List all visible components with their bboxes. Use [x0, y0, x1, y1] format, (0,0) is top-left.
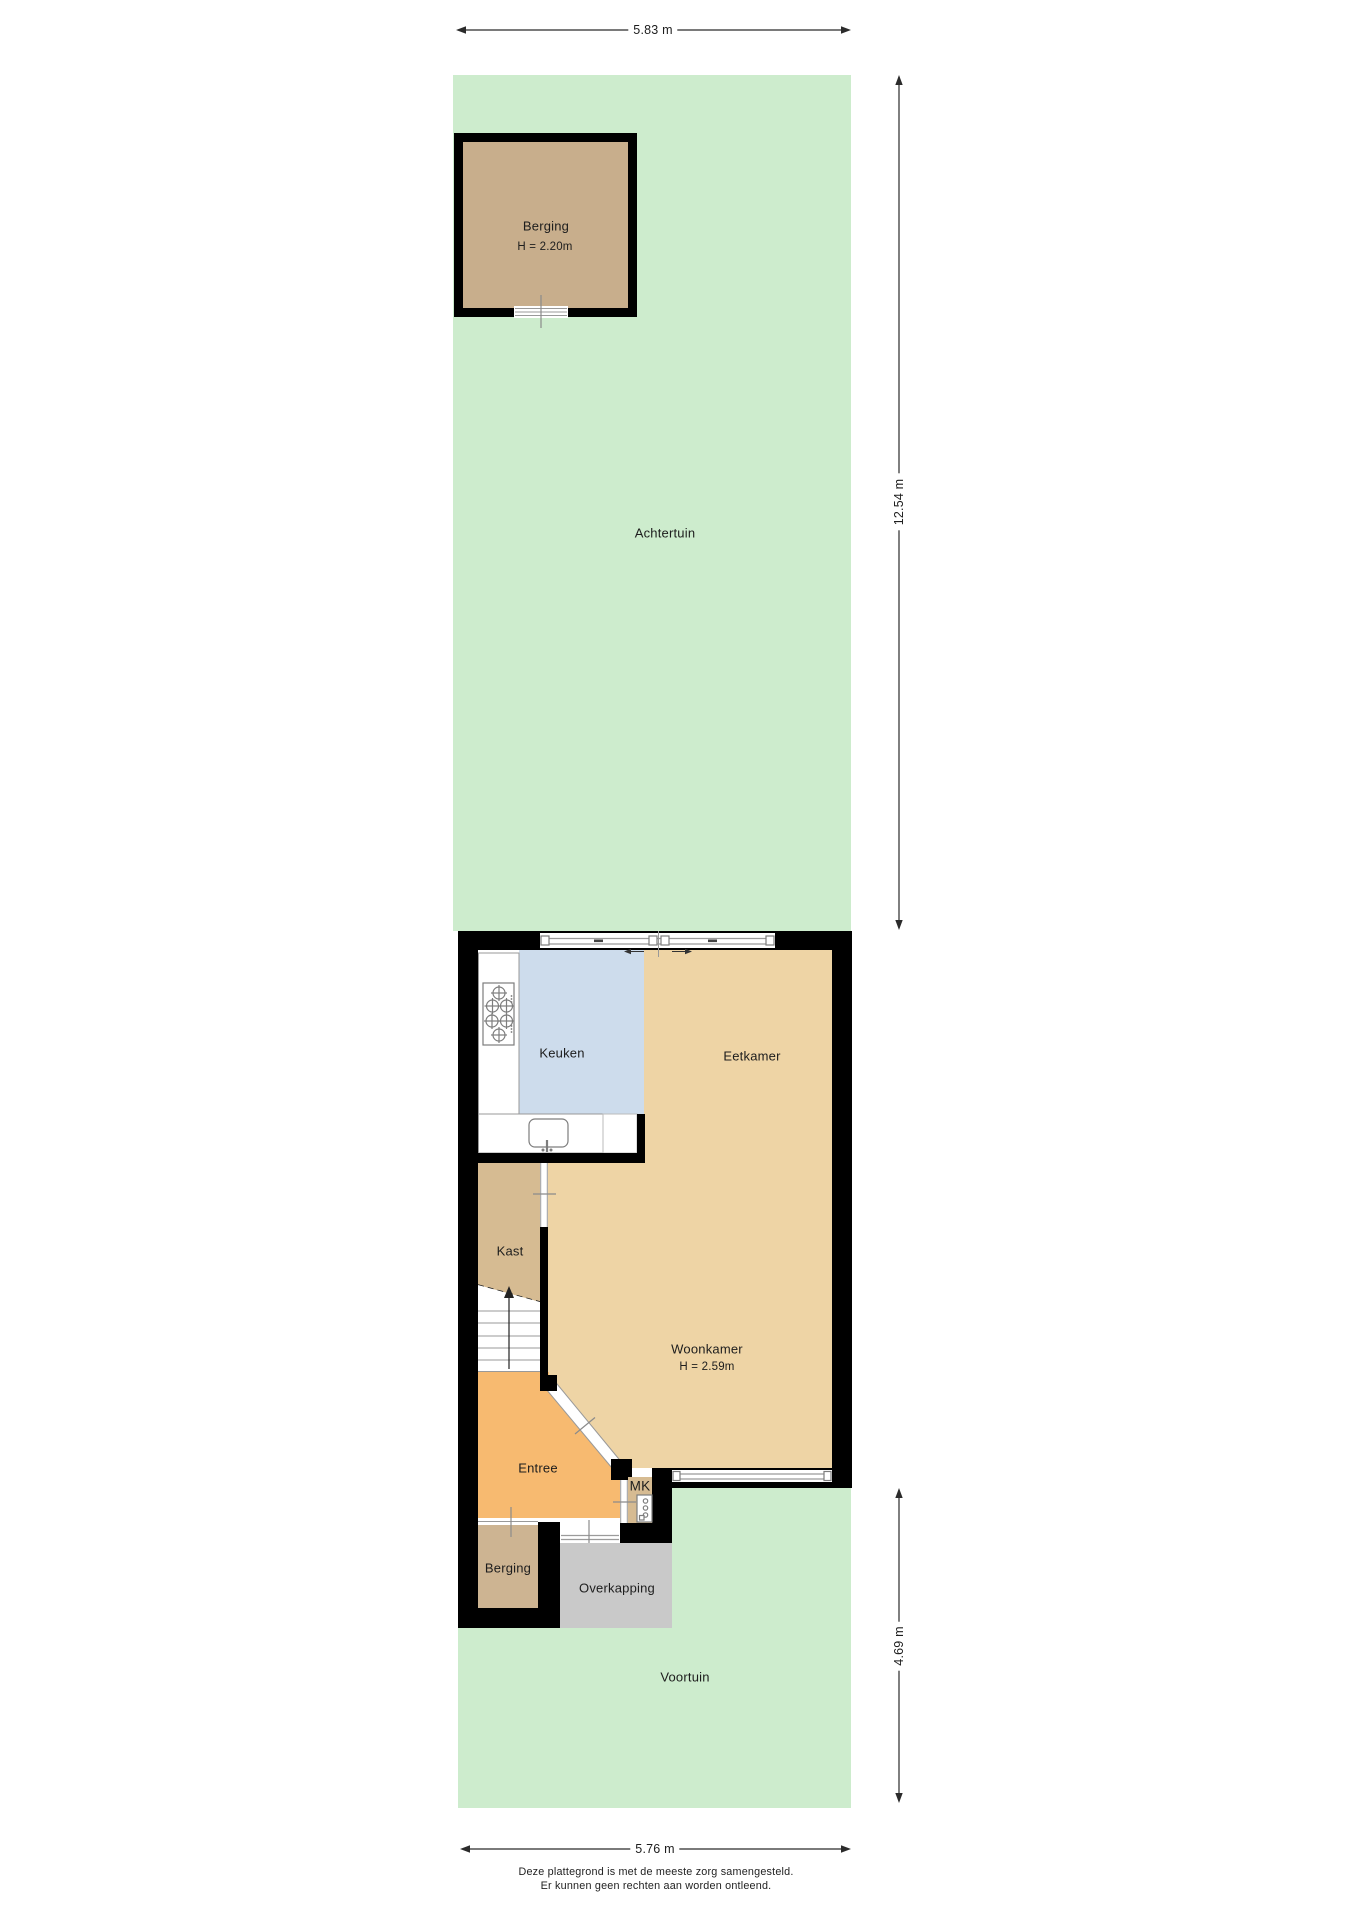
floorplan-canvas: Achtertuin Berging H = 2.20m Keuken Eetk…: [0, 0, 1358, 1920]
front-window-icon: [672, 1470, 832, 1482]
front-storage-label: Berging: [485, 1561, 531, 1576]
woonkamer-height-label: H = 2.59m: [679, 1361, 734, 1373]
woonkamer-label: Woonkamer: [671, 1342, 743, 1357]
shed-height-label: H = 2.20m: [517, 241, 572, 253]
wall-corner-block: [540, 1375, 557, 1391]
shed-label: Berging: [523, 219, 569, 234]
dimension-right-front-label: 4.69 m: [892, 1621, 906, 1670]
kast-floor: [478, 1163, 540, 1302]
voortuin-label: Voortuin: [660, 1670, 709, 1685]
disclaimer-line-2: Er kunnen geen rechten aan worden ontlee…: [541, 1880, 772, 1892]
kitchen-floor: [519, 950, 644, 1114]
counter-opening: [603, 1114, 637, 1153]
meter-cabinet-icon: [637, 1495, 652, 1522]
overkapping-label: Overkapping: [579, 1581, 655, 1596]
dimension-top-label: 5.83 m: [628, 23, 677, 37]
dimension-right-back-label: 12.54 m: [892, 474, 906, 531]
keuken-label: Keuken: [539, 1046, 584, 1061]
sink-icon: [529, 1119, 568, 1152]
achtertuin-label: Achtertuin: [635, 526, 696, 541]
eetkamer-label: Eetkamer: [723, 1049, 780, 1064]
floorplan-drawing: [0, 0, 1358, 1920]
mk-label: MK: [630, 1479, 651, 1494]
wall-corner-block: [611, 1459, 632, 1480]
stove-icon: [483, 983, 515, 1045]
kast-label: Kast: [497, 1244, 524, 1259]
entree-label: Entree: [518, 1461, 558, 1476]
front-storage: [478, 1507, 538, 1608]
dimension-bottom-label: 5.76 m: [630, 1842, 679, 1856]
disclaimer-line-1: Deze plattegrond is met de meeste zorg s…: [518, 1866, 793, 1878]
living-floor: [548, 1163, 832, 1468]
